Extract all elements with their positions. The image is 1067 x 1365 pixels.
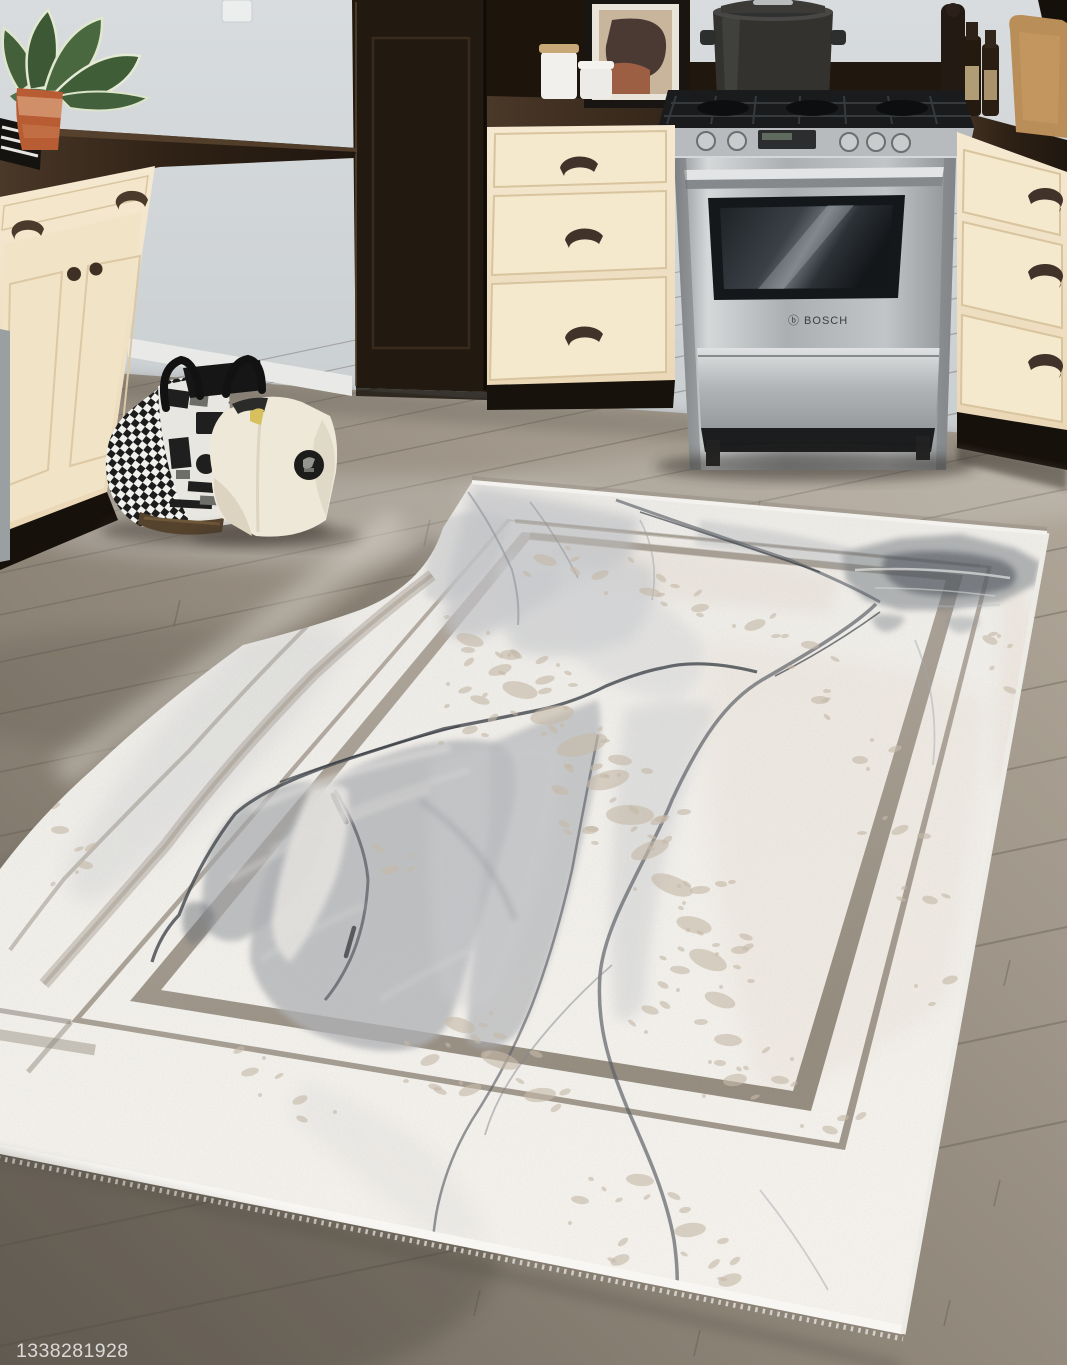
svg-text:ⓑ BOSCH: ⓑ BOSCH <box>788 314 848 327</box>
svg-text:1338281928: 1338281928 <box>16 1340 128 1362</box>
